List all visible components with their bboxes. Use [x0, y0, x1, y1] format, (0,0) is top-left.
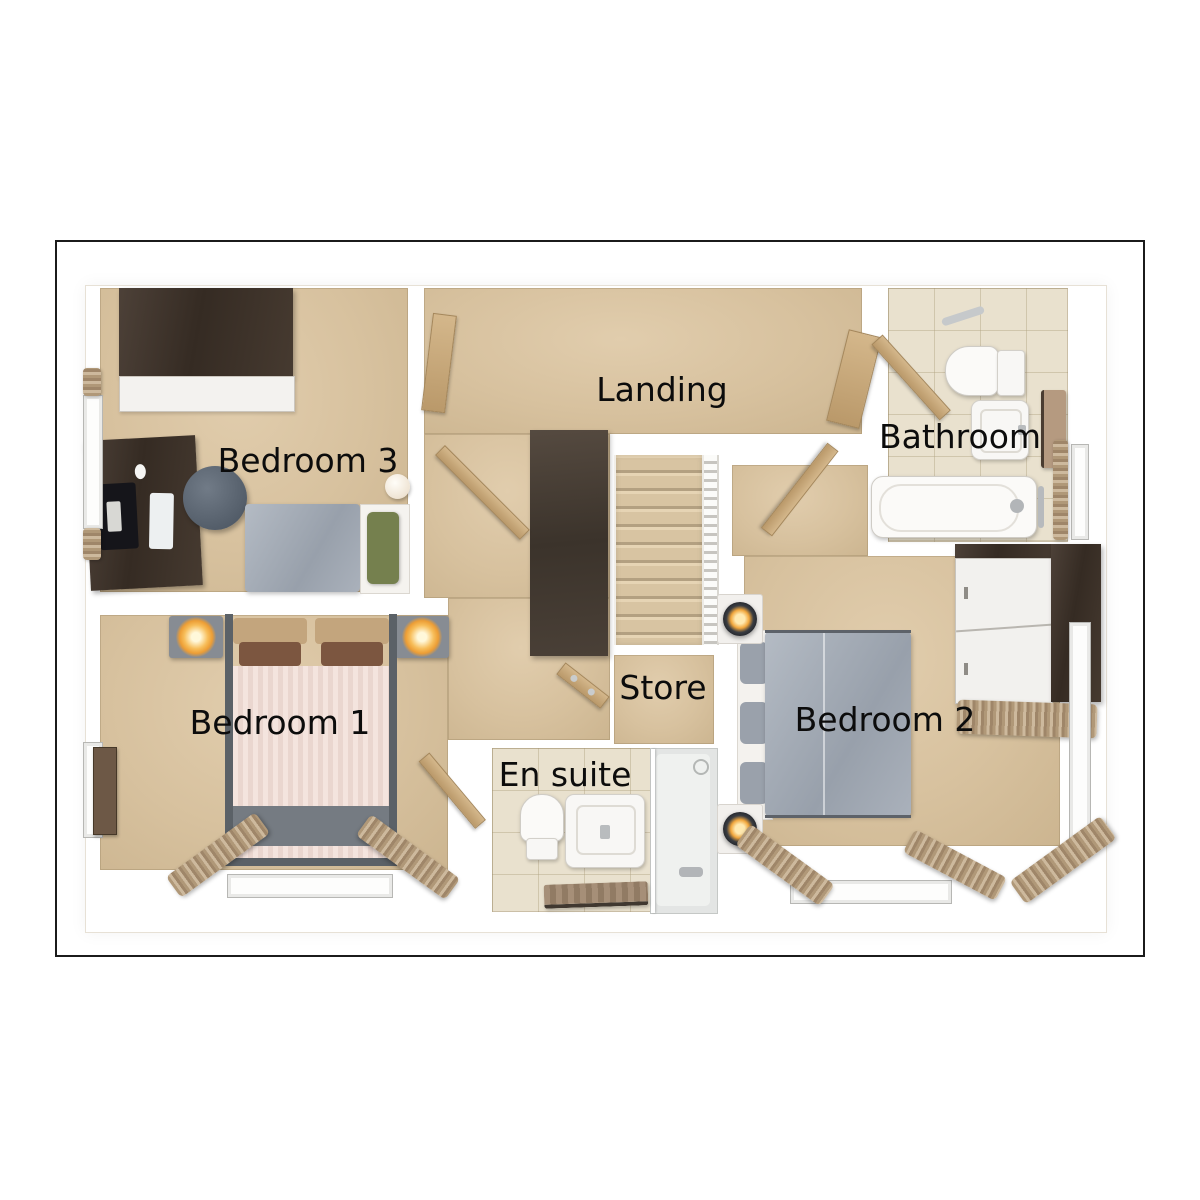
bed-foot-sheet — [233, 846, 389, 858]
shower-drain — [693, 759, 709, 775]
monitor-screen — [106, 501, 122, 532]
pillow — [233, 618, 307, 644]
bed-edge-bottom — [765, 815, 911, 818]
hook — [569, 674, 579, 684]
pillow-green — [367, 512, 399, 584]
ensuite-sink — [565, 794, 645, 868]
room-landing-floor-top — [424, 288, 862, 434]
keyboard — [149, 493, 174, 549]
shower-mixer — [1038, 486, 1044, 528]
shower-valve — [679, 867, 703, 877]
wardrobe-doors — [955, 558, 1053, 704]
pillow — [239, 642, 301, 666]
shower-glass — [651, 749, 655, 913]
ensuite-toilet-cistern — [526, 838, 558, 860]
bedroom1-window-bottom — [227, 874, 393, 898]
wardrobe-front — [119, 376, 295, 412]
pillow-gray — [740, 762, 768, 804]
mouse — [134, 464, 146, 480]
bed-rail-foot — [225, 858, 397, 866]
room-label-landing: Landing — [596, 371, 728, 409]
wardrobe — [119, 288, 293, 376]
single-bed-duvet — [245, 504, 360, 592]
wardrobe-handle — [964, 587, 968, 599]
room-label-bedroom1: Bedroom 1 — [190, 704, 371, 742]
plan-border: Landing Bedroom 3 Bathroom Bedroom 1 Sto… — [55, 240, 1145, 957]
bedroom3-curtain-top — [83, 368, 101, 396]
bedroom3-curtain-bottom — [83, 528, 101, 560]
toilet-bowl — [945, 346, 999, 396]
shower-enclosure — [650, 748, 718, 914]
bedroom1-pelmet — [93, 747, 117, 835]
bed-edge-top — [765, 630, 911, 633]
bathroom-curtain — [1053, 440, 1068, 540]
bathtub-basin — [879, 484, 1019, 532]
pillow — [321, 642, 383, 666]
room-label-bathroom: Bathroom — [879, 418, 1041, 456]
room-label-bedroom3: Bedroom 3 — [218, 442, 399, 480]
table-lamp — [176, 617, 216, 657]
bedroom3-window — [83, 395, 103, 529]
bathroom-window — [1071, 444, 1089, 540]
bedside-table-right — [395, 616, 449, 658]
shower-tray — [656, 754, 710, 906]
wardrobe-handle — [964, 663, 968, 675]
wardrobe-top-strip — [955, 544, 1051, 558]
room-label-bedroom2: Bedroom 2 — [795, 701, 976, 739]
bedroom2-window-right — [1069, 622, 1091, 856]
pillow-gray — [740, 702, 768, 744]
landing-cabinet — [530, 430, 608, 656]
wardrobe-door-seam — [956, 624, 1052, 633]
room-label-ensuite: En suite — [499, 756, 632, 794]
room-label-store: Store — [619, 669, 706, 707]
bathtub — [871, 476, 1037, 538]
pillow — [315, 618, 389, 644]
toilet-cistern — [997, 350, 1025, 396]
pillow-gray — [740, 642, 768, 684]
ensuite-toilet-bowl — [520, 794, 564, 842]
table-lamp — [402, 617, 442, 657]
hook — [586, 687, 596, 697]
bath-mat — [544, 881, 649, 909]
ensuite-sink-faucet — [600, 825, 610, 839]
table-lamp-dark — [723, 602, 757, 636]
bathtub-faucet — [1010, 499, 1024, 513]
monitor — [97, 482, 138, 550]
staircase — [614, 455, 702, 645]
bedside-table-top — [717, 594, 763, 644]
bedside-table-left — [169, 616, 223, 658]
floorplan-canvas: Landing Bedroom 3 Bathroom Bedroom 1 Sto… — [0, 0, 1200, 1200]
